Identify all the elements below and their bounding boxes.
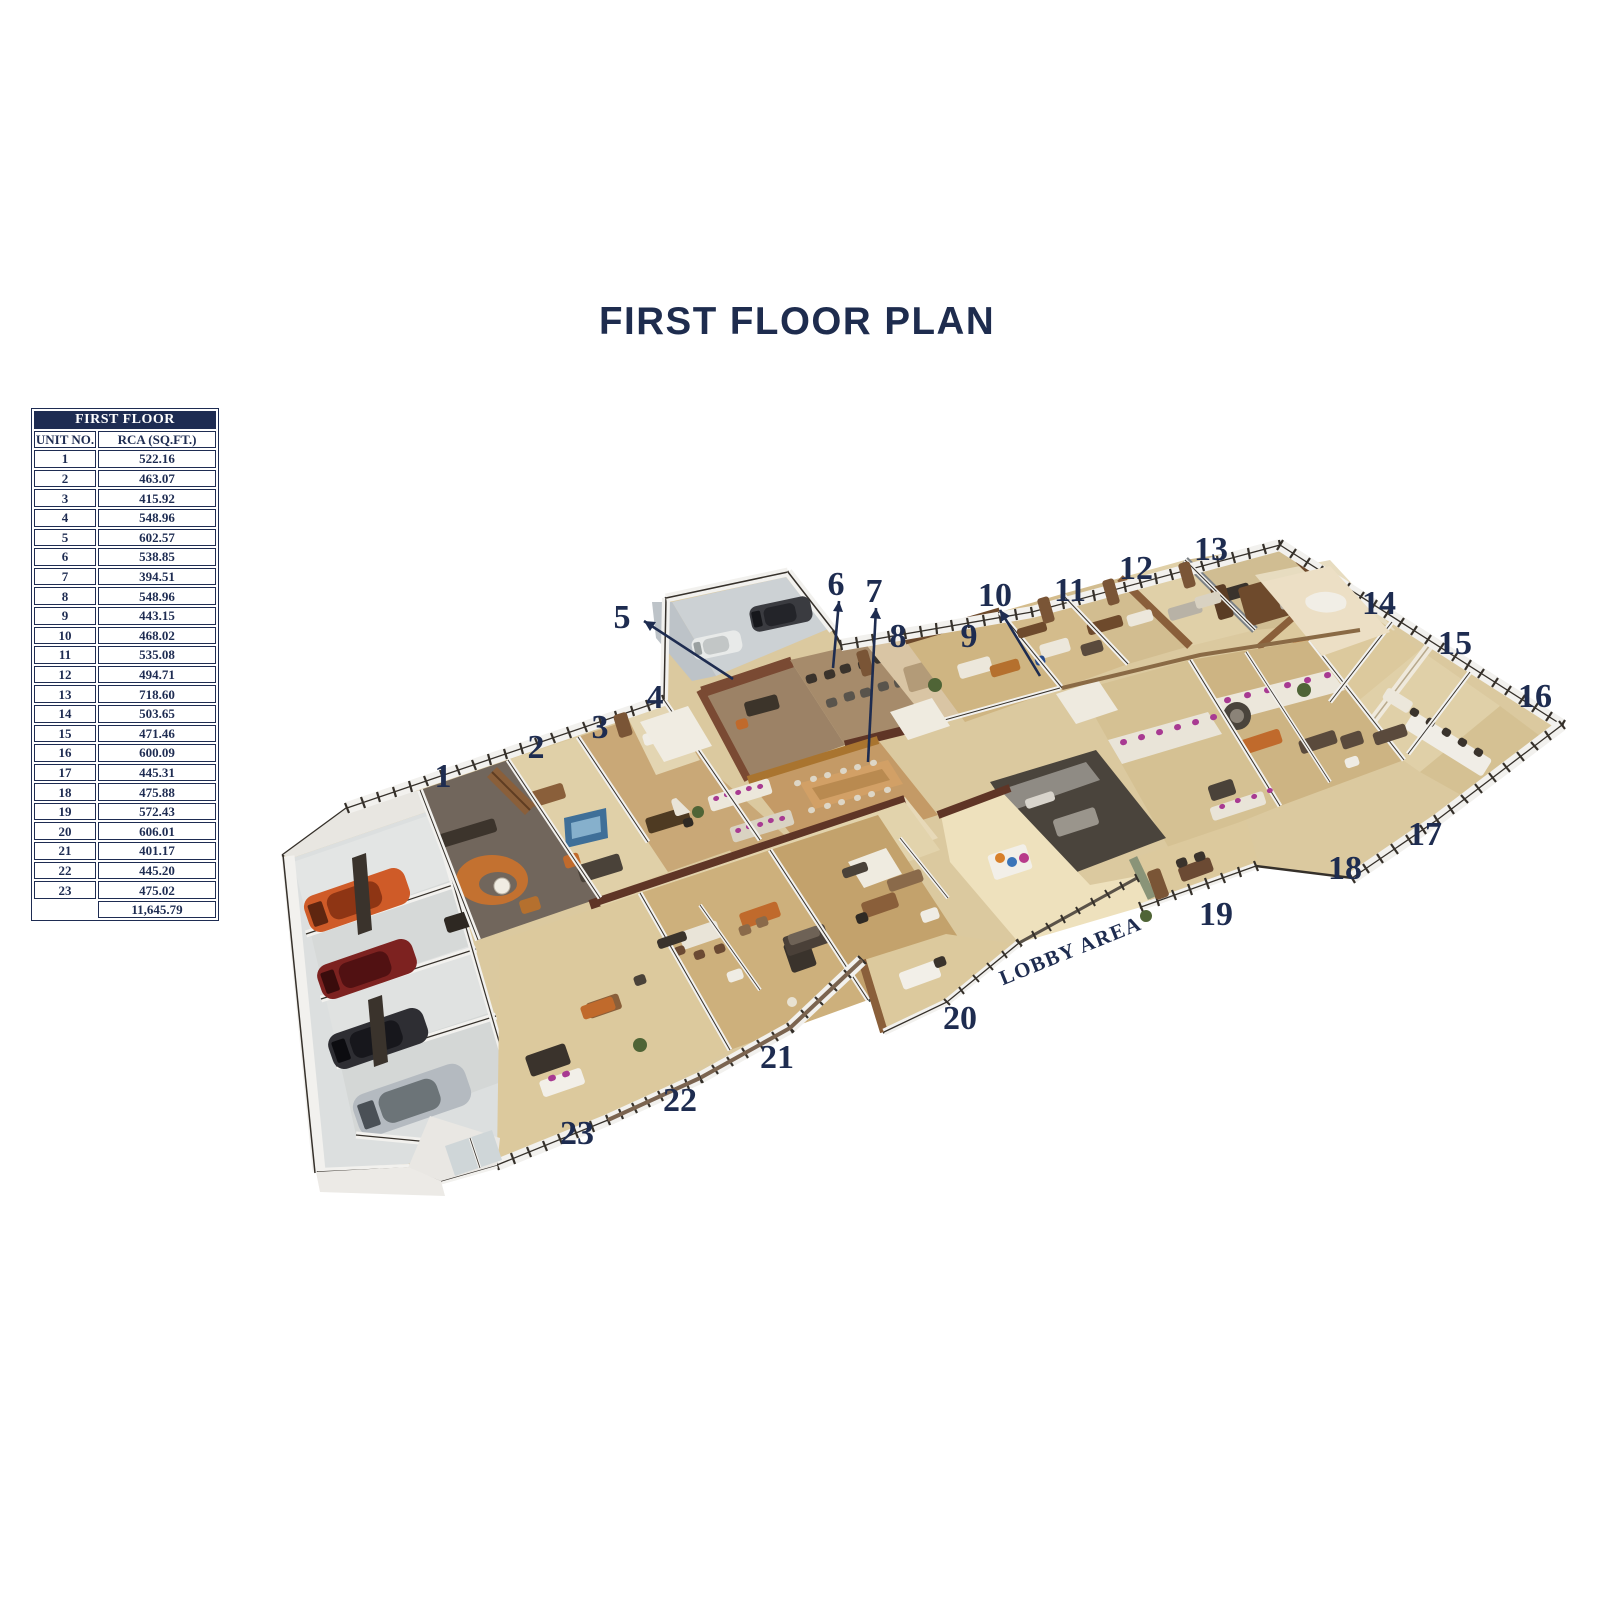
svg-text:21: 21	[760, 1039, 794, 1076]
svg-text:3: 3	[592, 709, 609, 746]
svg-text:9: 9	[961, 618, 978, 655]
svg-text:19: 19	[1199, 896, 1233, 933]
svg-text:8: 8	[890, 618, 907, 655]
svg-text:5: 5	[614, 599, 631, 636]
svg-text:12: 12	[1119, 550, 1153, 587]
svg-text:15: 15	[1438, 625, 1472, 662]
svg-text:14: 14	[1362, 585, 1396, 622]
svg-text:18: 18	[1328, 850, 1362, 887]
svg-text:23: 23	[560, 1115, 594, 1152]
svg-text:17: 17	[1408, 816, 1442, 853]
svg-text:4: 4	[647, 679, 664, 716]
svg-text:7: 7	[866, 573, 883, 610]
svg-text:2: 2	[528, 729, 545, 766]
svg-text:6: 6	[828, 566, 845, 603]
svg-text:16: 16	[1518, 678, 1552, 715]
svg-text:20: 20	[943, 1000, 977, 1037]
svg-text:1: 1	[435, 758, 452, 795]
svg-text:22: 22	[663, 1082, 697, 1119]
svg-text:11: 11	[1054, 572, 1086, 609]
svg-text:10: 10	[978, 577, 1012, 614]
svg-text:13: 13	[1194, 531, 1228, 568]
